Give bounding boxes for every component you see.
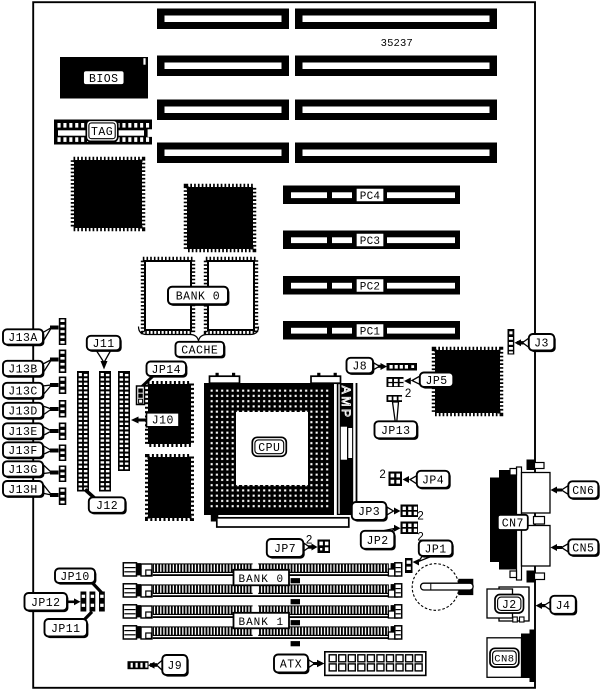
svg-text:CN8: CN8 xyxy=(494,653,514,665)
svg-text:JP11: JP11 xyxy=(51,623,81,636)
svg-text:J4: J4 xyxy=(556,600,571,613)
svg-text:CN7: CN7 xyxy=(502,518,524,531)
svg-text:35237: 35237 xyxy=(381,37,413,49)
svg-text:J13D: J13D xyxy=(8,406,38,419)
svg-text:J13C: J13C xyxy=(8,386,38,399)
svg-text:J10: J10 xyxy=(152,415,174,428)
svg-text:JP3: JP3 xyxy=(358,506,380,519)
svg-text:J2: J2 xyxy=(502,599,517,612)
svg-text:J13F: J13F xyxy=(8,445,38,458)
svg-text:JP4: JP4 xyxy=(422,474,444,487)
svg-text:PC2: PC2 xyxy=(360,281,380,293)
svg-text:PC3: PC3 xyxy=(360,236,380,248)
svg-text:J13A: J13A xyxy=(8,332,38,345)
svg-text:ATX: ATX xyxy=(280,659,302,672)
svg-text:CACHE: CACHE xyxy=(181,344,218,357)
svg-text:J13G: J13G xyxy=(8,464,38,477)
svg-text:CN6: CN6 xyxy=(572,485,594,498)
svg-text:BANK 0: BANK 0 xyxy=(238,574,284,586)
svg-text:J3: J3 xyxy=(534,337,549,350)
svg-text:J13B: J13B xyxy=(8,364,38,377)
svg-text:J8: J8 xyxy=(352,361,367,374)
svg-text:JP5: JP5 xyxy=(425,375,447,388)
svg-text:2: 2 xyxy=(405,388,412,400)
svg-text:JP1: JP1 xyxy=(424,543,446,556)
svg-text:JP2: JP2 xyxy=(366,535,388,548)
svg-text:JP14: JP14 xyxy=(151,364,181,377)
svg-text:J12: J12 xyxy=(96,500,118,513)
svg-text:PC4: PC4 xyxy=(360,191,381,203)
svg-text:J9: J9 xyxy=(167,660,182,673)
svg-text:TAG: TAG xyxy=(91,126,113,139)
svg-text:BIOS: BIOS xyxy=(89,73,119,86)
svg-text:BANK 0: BANK 0 xyxy=(176,291,220,304)
svg-text:2: 2 xyxy=(379,469,386,481)
svg-text:CN5: CN5 xyxy=(572,542,594,555)
svg-text:JP12: JP12 xyxy=(31,597,61,610)
svg-text:JP13: JP13 xyxy=(381,425,411,438)
svg-text:J13H: J13H xyxy=(8,484,38,497)
svg-text:PC1: PC1 xyxy=(360,326,381,338)
svg-text:CPU: CPU xyxy=(258,442,280,455)
svg-text:JP10: JP10 xyxy=(60,571,90,584)
svg-text:J13E: J13E xyxy=(8,426,38,439)
svg-text:BANK 1: BANK 1 xyxy=(238,617,284,629)
svg-text:2: 2 xyxy=(417,511,424,523)
svg-text:JP7: JP7 xyxy=(274,543,296,556)
svg-text:AMP: AMP xyxy=(339,386,353,420)
svg-text:J11: J11 xyxy=(92,338,114,351)
